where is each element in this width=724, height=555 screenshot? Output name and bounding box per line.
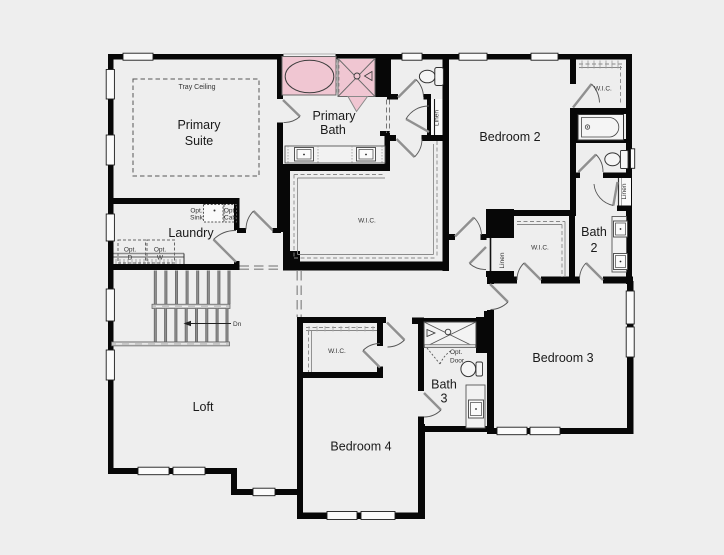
svg-text:Opt.: Opt.	[450, 349, 462, 356]
svg-text:Sink: Sink	[190, 215, 203, 222]
svg-text:Linen: Linen	[621, 183, 628, 199]
svg-text:D: D	[128, 255, 133, 262]
svg-text:W.I.C.: W.I.C.	[531, 245, 549, 252]
svg-text:Loft: Loft	[193, 400, 214, 414]
svg-text:W.I.C.: W.I.C.	[328, 348, 346, 355]
svg-text:Tray Ceiling: Tray Ceiling	[178, 84, 215, 91]
svg-text:2: 2	[591, 241, 598, 255]
svg-text:Laundry: Laundry	[168, 226, 214, 240]
svg-text:Bedroom 2: Bedroom 2	[479, 130, 540, 144]
svg-text:Opt.: Opt.	[124, 247, 136, 254]
svg-text:Linen: Linen	[434, 110, 441, 126]
svg-text:Bath: Bath	[581, 225, 607, 239]
svg-text:Linen: Linen	[499, 252, 506, 268]
svg-text:W: W	[157, 255, 164, 262]
svg-text:Opt.: Opt.	[224, 208, 236, 215]
svg-text:Suite: Suite	[185, 134, 214, 148]
svg-text:W.I.C.: W.I.C.	[358, 218, 376, 225]
svg-text:Primary: Primary	[177, 118, 221, 132]
svg-text:Bedroom 3: Bedroom 3	[532, 351, 593, 365]
svg-text:Opt.: Opt.	[154, 247, 166, 254]
svg-text:Primary: Primary	[312, 109, 356, 123]
svg-text:Bath: Bath	[320, 123, 346, 137]
svg-text:Bedroom 4: Bedroom 4	[330, 440, 391, 454]
svg-text:Cab: Cab	[224, 215, 236, 222]
svg-text:Dn: Dn	[233, 321, 242, 328]
svg-text:W.I.C.: W.I.C.	[594, 86, 612, 93]
svg-text:Door: Door	[450, 358, 465, 365]
svg-text:Bath: Bath	[431, 378, 457, 392]
svg-text:Opt.: Opt.	[190, 208, 202, 215]
svg-text:3: 3	[441, 392, 448, 406]
